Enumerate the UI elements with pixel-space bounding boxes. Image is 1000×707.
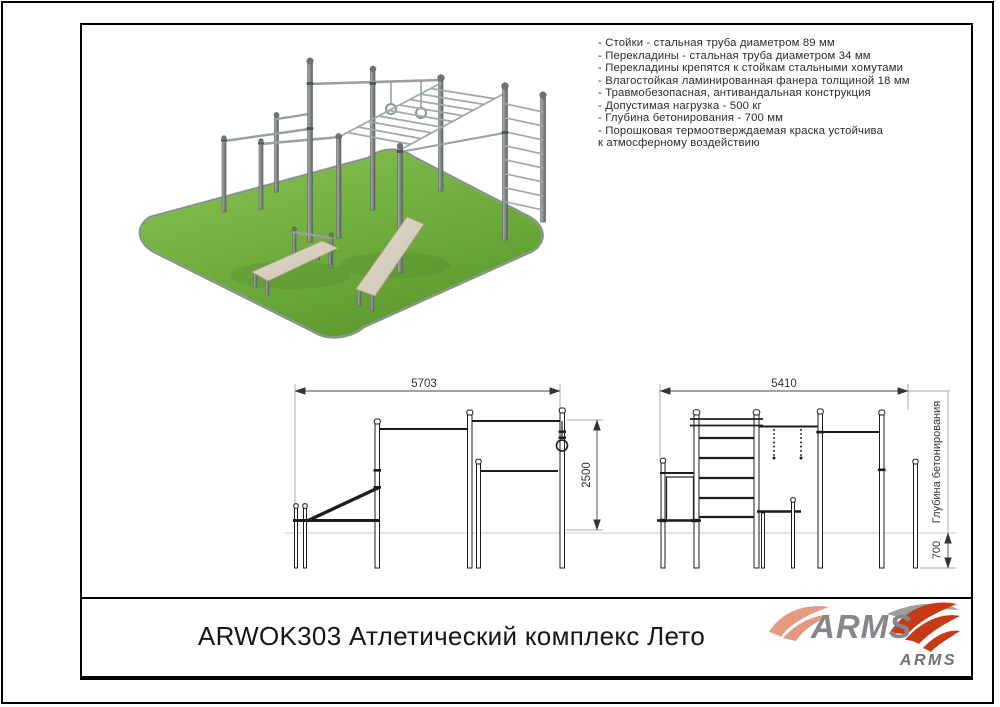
spec-line: к атмосферному воздействию [598, 137, 958, 150]
title-block: ARWOK303 Атлетический комплекс Лето ARMS… [80, 597, 973, 678]
spec-line: - Влагостойкая ламинированная фанера тол… [598, 75, 958, 88]
monkey-bars [337, 83, 505, 150]
spec-line: - Глубина бетонирования - 700 мм [598, 112, 958, 125]
spec-line: - Стойки - стальная труба диаметром 89 м… [598, 37, 958, 50]
spec-line: - Перекладины - стальная труба диаметром… [598, 50, 958, 63]
render-3d [108, 40, 572, 362]
arms-brand-text-small: ARMS [900, 652, 957, 670]
render-3d-image [108, 40, 572, 362]
spec-line: - Травмобезопасная, антивандальная конст… [598, 87, 958, 100]
sheet-title: ARWOK303 Атлетический комплекс Лето [82, 621, 821, 652]
arms-logo: ARMS ARMS [767, 600, 965, 674]
spec-line: - Перекладины крепятся к стойкам стальны… [598, 62, 958, 75]
spec-line: - Допустимая нагрузка - 500 кг [598, 100, 958, 113]
arms-brand-text: ARMS [811, 608, 912, 646]
spec-line: - Порошковая термоотверждаемая краска ус… [598, 125, 958, 138]
drawing-sheet: - Стойки - стальная труба диаметром 89 м… [0, 0, 1000, 707]
spec-list: - Стойки - стальная труба диаметром 89 м… [598, 37, 958, 150]
